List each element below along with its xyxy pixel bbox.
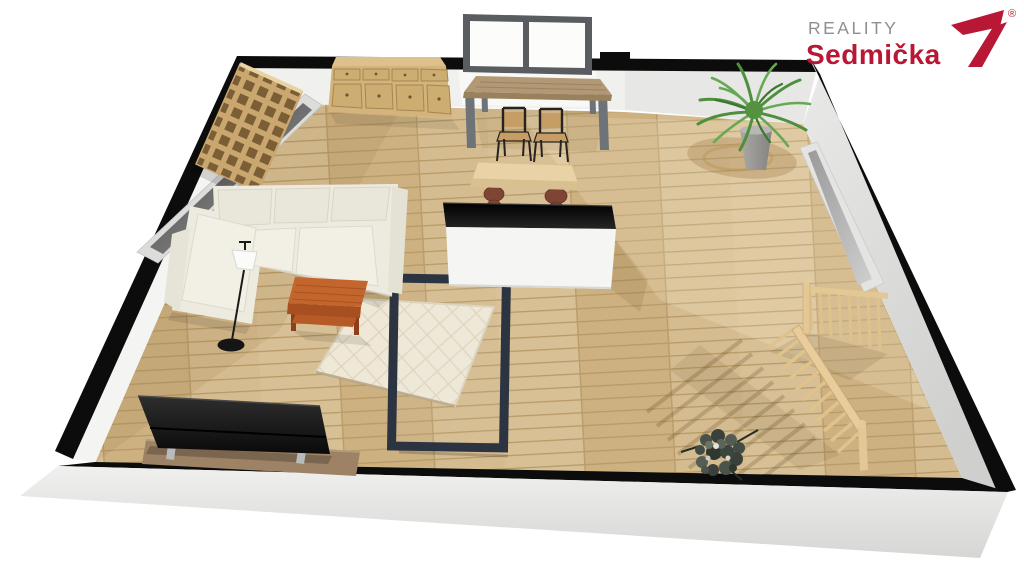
dresser-top xyxy=(332,57,446,66)
brand-registered-mark: ® xyxy=(1008,8,1016,20)
floorplan-render: REALITY Sedmička ® xyxy=(0,0,1024,576)
railing-corner-post xyxy=(803,282,810,334)
lamp-base xyxy=(218,339,245,352)
island-front xyxy=(446,227,616,289)
railing-post-knob xyxy=(803,278,810,285)
dining-table-top xyxy=(464,76,612,95)
back-window-pane-right xyxy=(529,22,585,68)
back-window xyxy=(463,14,592,75)
palm-pot-rim xyxy=(740,126,772,135)
glass-table-frame xyxy=(392,278,507,448)
brand-line1: REALITY xyxy=(808,18,898,38)
brand-line2: Sedmička xyxy=(806,39,941,70)
wall-pillar-stub xyxy=(600,52,630,68)
back-window-pane-left xyxy=(470,21,523,67)
brand-seven-icon xyxy=(951,10,1007,67)
chair-seat xyxy=(497,132,531,141)
railing-end-knob xyxy=(858,420,866,428)
chair-back-panel xyxy=(502,112,526,127)
palm-center xyxy=(745,101,763,119)
chest-of-drawers xyxy=(328,57,452,118)
glass-frame-table xyxy=(392,278,508,456)
chair-back-panel xyxy=(539,113,563,128)
brand-logo: REALITY Sedmička ® xyxy=(806,8,1016,70)
kitchen-island xyxy=(443,203,616,289)
chair-seat xyxy=(534,133,568,142)
island-top xyxy=(443,203,616,229)
floorplan-svg: REALITY Sedmička ® xyxy=(0,0,1024,576)
sofa-back-cushions xyxy=(218,187,390,226)
bench-top xyxy=(472,162,578,182)
